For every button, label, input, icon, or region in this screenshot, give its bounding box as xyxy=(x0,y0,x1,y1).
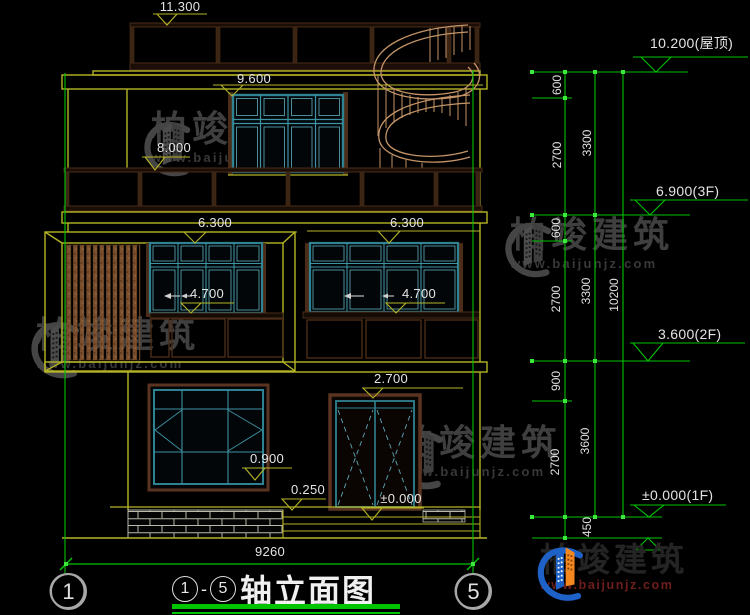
level-label-2f-sill-left: 4.700 xyxy=(184,287,230,301)
cad-elevation-canvas: 柏竣建筑 www.baijunjz.com 柏竣建筑 www.baijunjz.… xyxy=(0,0,750,615)
level-label-roof: 10.200(屋顶) xyxy=(650,36,733,51)
dim-900: 900 xyxy=(549,371,563,391)
title-axis-from: 1 xyxy=(172,576,198,602)
dim-2700-b: 2700 xyxy=(549,286,563,313)
axis-bubble-1: 1 xyxy=(50,573,87,610)
dim-3300-b: 3300 xyxy=(579,278,593,305)
level-label-1f-sill: 0.900 xyxy=(241,452,293,466)
level-label-2f-slab-right: 6.300 xyxy=(382,216,432,230)
dim-600-a: 600 xyxy=(550,75,564,95)
level-label-porch: 0.250 xyxy=(284,483,332,497)
axis-bubble-5: 5 xyxy=(455,573,492,610)
text-layer: 11.300 9.600 8.000 6.300 6.300 4.700 4.7… xyxy=(0,0,750,615)
brand-logo-icon xyxy=(534,542,592,604)
dim-450: 450 xyxy=(580,517,594,537)
level-label-2f-sill-right: 4.700 xyxy=(396,287,442,301)
title-axis-to: 5 xyxy=(210,576,236,602)
level-label-1f: ±0.000(1F) xyxy=(642,488,713,503)
level-label-door-head: 2.700 xyxy=(368,372,414,386)
level-label-floor-zero: ±0.000 xyxy=(373,492,429,506)
dim-10200-total: 10200 xyxy=(607,278,621,311)
level-label-3f-window: 9.600 xyxy=(232,72,276,86)
title-dash: - xyxy=(201,579,207,600)
title-underline-thin xyxy=(172,612,400,614)
dim-600-b: 600 xyxy=(549,218,563,238)
title-underline-thick xyxy=(172,604,400,609)
dim-3600: 3600 xyxy=(578,428,592,455)
dim-2700-a: 2700 xyxy=(550,142,564,169)
overall-width-dimension: 9260 xyxy=(244,545,296,559)
level-label-parapet: 11.300 xyxy=(152,0,208,14)
level-label-3f: 6.900(3F) xyxy=(656,184,719,199)
dim-2700-c: 2700 xyxy=(548,449,562,476)
level-label-2f: 3.600(2F) xyxy=(658,327,721,342)
dim-3300-a: 3300 xyxy=(580,130,594,157)
level-label-2f-slab-left: 6.300 xyxy=(190,216,240,230)
level-label-3f-rail: 8.000 xyxy=(152,141,196,155)
brand-logo: 柏竣建筑 www.baijunjz.com xyxy=(534,542,688,592)
